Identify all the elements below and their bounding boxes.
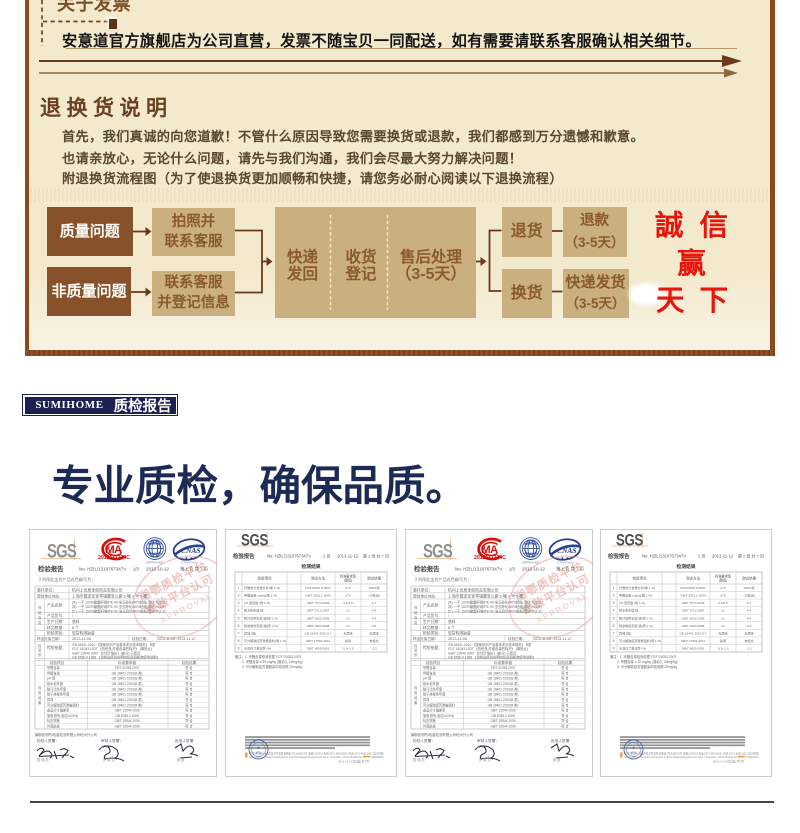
- svg-text:≤75: ≤75: [345, 594, 350, 598]
- svg-text:GB 18401-2010(B 类): GB 18401-2010(B 类): [488, 697, 519, 702]
- svg-text:≥3: ≥3: [346, 616, 350, 620]
- svg-text:检验依据：: 检验依据：: [47, 645, 66, 650]
- svg-text:信: 信: [414, 615, 418, 620]
- svg-text:符 合: 符 合: [185, 718, 193, 723]
- svg-text:样品交接日期：: 样品交接日期：: [37, 636, 62, 641]
- svg-text:耐干摩擦色牢度: 耐干摩擦色牢度: [47, 692, 70, 697]
- svg-text:GB 18401-2010(B 类): GB 18401-2010(B 类): [488, 692, 519, 697]
- svg-text:检验报告: 检验报告: [233, 552, 255, 560]
- svg-text:第 2 页 共 7 页: 第 2 页 共 7 页: [363, 553, 389, 559]
- svg-text:符 合: 符 合: [185, 702, 193, 707]
- svg-text:4-5: 4-5: [747, 624, 752, 628]
- svg-text:检: 检: [414, 643, 418, 648]
- svg-text:(C) 一干 100%聚酯纤维/PE-90 全无砂化/40%: (C) 一干 100%聚酯纤维/PE-90 全无砂化/40%粘贴,混纺,%(1/…: [72, 608, 166, 613]
- svg-text:无异味: 无异味: [343, 630, 352, 635]
- svg-text:≥3: ≥3: [721, 624, 725, 628]
- svg-text:No. HZIL/1310767347V: No. HZIL/1310767347V: [267, 554, 311, 559]
- svg-text:生产日期：: 生产日期：: [423, 619, 442, 624]
- svg-text:1: 1: [613, 586, 615, 590]
- svg-text:2013-11-12: 2013-11-12: [337, 554, 359, 559]
- svg-text:2. 甲醛含量 ≤ 20 mg/kg (婴幼儿 20mg/k: 2. 甲醛含量 ≤ 20 mg/kg (婴幼儿 20mg/kg): [242, 659, 303, 664]
- svg-text:符 合: 符 合: [561, 692, 569, 697]
- svg-text:无异味: 无异味: [369, 630, 378, 635]
- svg-text:FZ/T01057 8:2007: FZ/T01057 8:2007: [680, 586, 706, 590]
- svg-text:标志规格: 标志规格: [47, 718, 61, 723]
- svg-text:检验项目: 检验项目: [50, 660, 64, 665]
- svg-text:底料: 底料: [448, 619, 456, 624]
- svg-text:产品名称：: 产品名称：: [47, 603, 66, 608]
- svg-text:产品货号：: 产品货号：: [47, 613, 66, 618]
- svg-text:GB 18401-2010(B 类): GB 18401-2010(B 类): [488, 681, 519, 686]
- svg-text:2012111234C: 2012111234C: [98, 555, 130, 561]
- svg-text:杭州上佳居家纺织品有限公司: 杭州上佳居家纺织品有限公司: [448, 587, 499, 592]
- svg-text:GB 18401-2010(B 类): GB 18401-2010(B 类): [488, 670, 519, 675]
- svg-text:GB/T 2912.1-2009: GB/T 2912.1-2009: [305, 594, 331, 598]
- svg-text:信: 信: [38, 615, 42, 620]
- svg-text:样品数量：: 样品数量：: [423, 625, 442, 630]
- svg-text:(A) 一干 100%聚酯纤维/PE-90 全无砂化/40%: (A) 一干 100%聚酯纤维/PE-90 全无砂化/40%粘贴,混纺,%(1/…: [448, 600, 541, 605]
- svg-text:样: 样: [38, 605, 42, 610]
- svg-text:符 合: 符 合: [561, 676, 569, 681]
- svg-text:★: ★: [632, 745, 636, 750]
- svg-text:受检单位地址：: 受检单位地址：: [413, 593, 439, 598]
- svg-text:无异味: 无异味: [744, 630, 753, 635]
- svg-text:GB/T 3920-2008: GB/T 3920-2008: [307, 624, 330, 628]
- svg-text:FZ/T 01053-2007 《纺织品 纤维含量的标识》: FZ/T 01053-2007 《纺织品 纤维含量的标识》 (单检点): [448, 646, 528, 651]
- svg-text:检测结果: 检测结果: [301, 563, 320, 570]
- svg-text:结: 结: [38, 695, 42, 700]
- svg-text:耐汗渍色牢度: 耐汗渍色牢度: [47, 686, 67, 691]
- svg-text:外观质量: 外观质量: [47, 724, 61, 729]
- svg-text:备注：1. 甲醛含量检测依据 FZ/T 01053-2007: 备注：1. 甲醛含量检测依据 FZ/T 01053-2007: [610, 654, 676, 659]
- svg-text:2 页: 2 页: [323, 554, 330, 559]
- svg-text:1: 1: [238, 586, 240, 590]
- svg-text:No. HZIL/1310767347V: No. HZIL/1310767347V: [455, 567, 502, 572]
- svg-text:≥3: ≥3: [346, 624, 350, 628]
- svg-text:检验结果: 检验结果: [182, 660, 197, 665]
- svg-text:2013-11-06: 2013-11-06: [72, 637, 91, 641]
- svg-text:符 合: 符 合: [561, 702, 569, 707]
- svg-text:GB 18401-2010 《国家纺织产品基本安全技术规范》: GB 18401-2010 《国家纺织产品基本安全技术规范》 B类: [448, 642, 532, 647]
- svg-text:异味 (级): 异味 (级): [244, 630, 256, 635]
- svg-text:检验人签署：: 检验人签署：: [413, 738, 435, 743]
- svg-text:2013-11-12(第2版) 共7页: 2013-11-12(第2版) 共7页: [713, 760, 744, 764]
- svg-text:耐水色牢度: 耐水色牢度: [423, 681, 440, 686]
- svg-text:甲醛含量: 甲醛含量: [47, 665, 61, 670]
- svg-text:GB 18401-2010 8.7: GB 18401-2010 8.7: [679, 631, 706, 635]
- svg-text:使用说明 (标志±4.5%): 使用说明 (标志±4.5%): [47, 713, 78, 718]
- svg-text:第 1 页 共 7 页: 第 1 页 共 7 页: [180, 566, 209, 573]
- svg-text:编制检测所/检疫检测有限公司杭州分公司: 编制检测所/检疫检测有限公司杭州分公司: [411, 732, 473, 737]
- svg-text:GB 18401-2010(B 类): GB 18401-2010(B 类): [488, 676, 519, 681]
- svg-text:pH 值范围 (限 1 %): pH 值范围 (限 1 %): [619, 600, 645, 605]
- svg-text:GB 18401-2010(B 类): GB 18401-2010(B 类): [112, 692, 143, 697]
- svg-text:检测结果: 检测结果: [676, 563, 695, 570]
- svg-text:GB/T 3922-1995: GB/T 3922-1995: [682, 616, 705, 620]
- svg-text:果: 果: [414, 700, 418, 705]
- svg-text:无异味: 无异味: [718, 630, 727, 635]
- svg-text:检验报告: 检验报告: [608, 552, 630, 560]
- svg-text:品: 品: [38, 611, 42, 615]
- svg-text:GB/T 22544 2009: GB/T 22544 2009: [114, 725, 139, 729]
- svg-text:符 合: 符 合: [561, 708, 569, 713]
- svg-text:符 合: 符 合: [561, 665, 569, 670]
- svg-text:检验日期：: 检验日期：: [508, 636, 526, 641]
- svg-text:水洗尺寸变化率 (%): 水洗尺寸变化率 (%): [619, 646, 646, 651]
- svg-text:8 个: 8 个: [448, 625, 455, 630]
- svg-text:符 合: 符 合: [185, 681, 193, 686]
- svg-text:编制检测所/检疫检测有限公司杭州分公司: 编制检测所/检疫检测有限公司杭州分公司: [35, 732, 97, 737]
- svg-text:禁用: 禁用: [345, 639, 351, 643]
- svg-text:GB 5296.4-1998 《消费品使用说明纺织品和服装使: GB 5296.4-1998 《消费品使用说明纺织品和服装使用说明》: [448, 655, 536, 660]
- svg-text:未检出: 未检出: [744, 638, 753, 643]
- svg-text:8: 8: [238, 639, 240, 643]
- svg-text:5: 5: [238, 616, 240, 620]
- svg-text:外观质量: 外观质量: [423, 724, 437, 729]
- svg-text:(B) 一干 100%聚酯纤维/PE-90 全无砂化/40%: (B) 一干 100%聚酯纤维/PE-90 全无砂化/40%粘贴,混纺,%(1/…: [448, 604, 541, 609]
- svg-text:符 合: 符 合: [185, 686, 193, 691]
- svg-text:中国·浙江杭州经济技术开发区白杨街2号大街515号 邮编:3: 中国·浙江杭州经济技术开发区白杨街2号大街515号 邮编:310018 电话:0…: [249, 752, 384, 756]
- svg-text:GB 18401-2010(B 类): GB 18401-2010(B 类): [112, 681, 143, 686]
- svg-text:耐摩擦色牢度 级(限 1 %): 耐摩擦色牢度 级(限 1 %): [619, 623, 653, 628]
- svg-text:100%涤: 100%涤: [368, 585, 379, 590]
- svg-text:(A) 一干 100%聚酯纤维/PE-90 全无砂化/40%: (A) 一干 100%聚酯纤维/PE-90 全无砂化/40%粘贴,混纺,%(1/…: [72, 600, 165, 605]
- svg-text:测试结果: 测试结果: [367, 576, 382, 581]
- svg-text:-1.2: -1.2: [371, 647, 377, 651]
- svg-text:符 合: 符 合: [185, 676, 193, 681]
- svg-text:甲醛含量 mg/kg(限 1 %): 甲醛含量 mg/kg(限 1 %): [244, 593, 277, 598]
- svg-text:4-5: 4-5: [372, 609, 377, 613]
- svg-text:2013-11-12(第2版) 共7页: 2013-11-12(第2版) 共7页: [338, 760, 369, 764]
- svg-text:GB 18401-2010(B 类): GB 18401-2010(B 类): [112, 697, 143, 702]
- svg-text:成品尺寸偏差率: 成品尺寸偏差率: [423, 708, 446, 713]
- svg-text:9: 9: [613, 647, 615, 651]
- svg-text:检验项目: 检验项目: [632, 576, 646, 581]
- svg-text:GB 18401-2010(B 类): GB 18401-2010(B 类): [112, 686, 143, 691]
- svg-text:6: 6: [238, 624, 240, 628]
- svg-text:GB 5296.4 1998: GB 5296.4 1998: [115, 714, 138, 718]
- svg-text:pH 值: pH 值: [423, 676, 432, 681]
- svg-text:验: 验: [414, 648, 418, 653]
- svg-text:4: 4: [613, 609, 615, 613]
- svg-text:检 验 员: 检 验 员: [37, 757, 49, 762]
- svg-text:现货检测抽查: 现货检测抽查: [448, 630, 471, 635]
- svg-text:(C) 一干 100%聚酯纤维/PE-90 全无砂化/40%: (C) 一干 100%聚酯纤维/PE-90 全无砂化/40%粘贴,混纺,%(1/…: [448, 608, 542, 613]
- svg-text:果: 果: [38, 700, 42, 705]
- svg-text:可分解致癌芳香胺染料(限 1 %): 可分解致癌芳香胺染料(限 1 %): [244, 638, 286, 643]
- svg-text:底料: 底料: [72, 619, 80, 624]
- svg-text:检验依据：: 检验依据：: [423, 645, 442, 650]
- svg-text:GB 18401-2010(B 类): GB 18401-2010(B 类): [112, 670, 143, 675]
- svg-text:No. HZIL/1310767347V: No. HZIL/1310767347V: [642, 554, 686, 559]
- svg-text:GB/T 3920-2008: GB/T 3920-2008: [682, 624, 705, 628]
- svg-text:第 1 页 共 7 页: 第 1 页 共 7 页: [556, 566, 585, 573]
- svg-text:中国·浙江杭州经济技术开发区白杨街2号大街515号 邮编:3: 中国·浙江杭州经济技术开发区白杨街2号大街515号 邮编:310018 电话:0…: [624, 752, 759, 756]
- svg-text:GB/T 22544 2009: GB/T 22544 2009: [490, 709, 515, 713]
- svg-text:GB/T 22544 2009: GB/T 22544 2009: [490, 725, 515, 729]
- svg-text:甲醛含量: 甲醛含量: [423, 665, 437, 670]
- svg-text:-0.7°: -0.7°: [720, 586, 727, 590]
- svg-text:≤75: ≤75: [720, 594, 725, 598]
- svg-text:(限值): (限值): [344, 578, 353, 583]
- svg-text:GB/T 17592-2011: GB/T 17592-2011: [681, 639, 706, 643]
- svg-text:生产日期：: 生产日期：: [47, 619, 66, 624]
- svg-text:验: 验: [414, 690, 418, 695]
- svg-text:禁用: 禁用: [720, 639, 726, 643]
- svg-text:标准要求值: 标准要求值: [118, 660, 136, 665]
- svg-text:3. 可分解致癌芳香胺染料检测限 20mg/kg: 3. 可分解致癌芳香胺染料检测限 20mg/kg: [617, 664, 677, 669]
- svg-text:纤维成分含量分析(重 1 %): 纤维成分含量分析(重 1 %): [619, 585, 655, 590]
- svg-text:水洗尺寸变化率 (%): 水洗尺寸变化率 (%): [244, 646, 271, 651]
- svg-text:耐汗渍色牢度 级(限 1 %): 耐汗渍色牢度 级(限 1 %): [619, 615, 653, 620]
- svg-text:检验报告: 检验报告: [38, 564, 64, 573]
- svg-text:1/3: 1/3: [133, 567, 140, 572]
- svg-text:批 准: 批 准: [553, 757, 561, 762]
- svg-text:★: ★: [257, 745, 261, 750]
- svg-text:SGS: SGS: [47, 539, 76, 562]
- svg-text:审核人签署：: 审核人签署：: [477, 738, 499, 743]
- svg-text:标准要求值: 标准要求值: [494, 660, 512, 665]
- svg-text:耐水色牢度 级: 耐水色牢度 级: [244, 608, 263, 613]
- svg-text:6.7: 6.7: [747, 601, 752, 605]
- svg-text:批准人签署：: 批准人签署：: [175, 738, 197, 743]
- svg-text:受检单位地址：: 受检单位地址：: [37, 593, 63, 598]
- svg-text:耐水色牢度: 耐水色牢度: [47, 681, 64, 686]
- svg-text:GB 5296.4 1998: GB 5296.4 1998: [491, 714, 514, 718]
- svg-text:7: 7: [238, 631, 240, 635]
- svg-text:检验项目: 检验项目: [257, 576, 271, 581]
- svg-text:样: 样: [414, 605, 418, 610]
- svg-text:<5(检出): <5(检出): [368, 593, 380, 598]
- svg-text:耐摩擦色牢度 级(限 1 %): 耐摩擦色牢度 级(限 1 %): [244, 623, 278, 628]
- svg-text:上海市嘉定区安亭镇曹安公路 5 幢 2 号 5 楼: 上海市嘉定区安亭镇曹安公路 5 幢 2 号 5 楼: [448, 593, 523, 598]
- svg-text:可分解致癌芳香胺染料: 可分解致癌芳香胺染料: [47, 702, 80, 707]
- svg-text:-5.0~1.5: -5.0~1.5: [342, 647, 354, 651]
- svg-text:检: 检: [38, 643, 42, 648]
- svg-text:-5.0~1.5: -5.0~1.5: [717, 647, 729, 651]
- svg-text:标志规格: 标志规格: [423, 718, 437, 723]
- svg-text:甲醛含量: 甲醛含量: [47, 670, 61, 675]
- svg-text:2. 甲醛含量 ≤ 20 mg/kg (婴幼儿 20mg/k: 2. 甲醛含量 ≤ 20 mg/kg (婴幼儿 20mg/kg): [617, 659, 678, 664]
- svg-text:4-5: 4-5: [372, 616, 377, 620]
- svg-text:-1.2: -1.2: [746, 647, 752, 651]
- svg-text:检验结果: 检验结果: [558, 660, 573, 665]
- svg-text:FZ/T 01053-2007: FZ/T 01053-2007: [491, 666, 516, 670]
- svg-text:测试方法: 测试方法: [686, 576, 701, 581]
- svg-text:FZ/T 01053-2007: FZ/T 01053-2007: [115, 666, 140, 670]
- svg-text:耐干摩擦色牢度: 耐干摩擦色牢度: [423, 692, 446, 697]
- svg-text:SGS: SGS: [616, 531, 643, 550]
- svg-text:4.0-8.5: 4.0-8.5: [343, 601, 353, 605]
- svg-text:符 合: 符 合: [185, 713, 193, 718]
- svg-text:2013-11-06~2013-11-12: 2013-11-06~2013-11-12: [533, 637, 571, 641]
- svg-text:2012111234C: 2012111234C: [474, 555, 506, 561]
- svg-text:可分解致癌芳香胺染料(限 1 %): 可分解致癌芳香胺染料(限 1 %): [619, 638, 661, 643]
- svg-text:异味: 异味: [423, 697, 430, 702]
- svg-text:异味 (级): 异味 (级): [619, 630, 631, 635]
- svg-text:FZ/T 01053-2007 《纺织品 纤维含量的标识》: FZ/T 01053-2007 《纺织品 纤维含量的标识》 (单检点): [72, 646, 152, 651]
- svg-text:8 个: 8 个: [72, 625, 79, 630]
- svg-text:审核人签署：: 审核人签署：: [101, 738, 123, 743]
- svg-text:GB/T 22544 2009 《针织T恤衫》(部分) 只: GB/T 22544 2009 《针织T恤衫》(部分) 只检点: [448, 650, 517, 655]
- svg-text:GB/T 17592-2011: GB/T 17592-2011: [306, 639, 331, 643]
- svg-text:4-5: 4-5: [372, 624, 377, 628]
- svg-text:检验日期：: 检验日期：: [132, 636, 150, 641]
- svg-text:符 合: 符 合: [185, 724, 193, 729]
- svg-text:4: 4: [238, 609, 240, 613]
- svg-text:2013-10-12: 2013-10-12: [522, 567, 546, 572]
- svg-text:GB 18401-2010(B 类): GB 18401-2010(B 类): [112, 676, 143, 681]
- svg-text:9: 9: [238, 647, 240, 651]
- svg-text:甲醛含量: 甲醛含量: [423, 670, 437, 675]
- svg-text:8: 8: [613, 639, 615, 643]
- svg-text:GB/T 3922-1995: GB/T 3922-1995: [307, 616, 330, 620]
- svg-text:(B) 一干 100%聚酯纤维/PE-90 全无砂化/40%: (B) 一干 100%聚酯纤维/PE-90 全无砂化/40%粘贴,混纺,%(1/…: [72, 604, 165, 609]
- svg-text:检: 检: [38, 685, 42, 690]
- svg-text:7: 7: [613, 631, 615, 635]
- svg-text:HZIL: HZIL: [256, 751, 262, 755]
- svg-text:记 录 员: 记 录 员: [479, 757, 491, 762]
- svg-text:GB 18401-2010(B 类): GB 18401-2010(B 类): [112, 702, 143, 707]
- svg-text:检验人签署：: 检验人签署：: [37, 738, 59, 743]
- svg-text:品: 品: [414, 611, 418, 615]
- svg-text:GB 18401-2010 8.7: GB 18401-2010 8.7: [304, 631, 331, 635]
- svg-text:5: 5: [613, 616, 615, 620]
- svg-text:SGS: SGS: [241, 531, 268, 550]
- svg-text:甲醛含量 mg/kg(限 1 %): 甲醛含量 mg/kg(限 1 %): [619, 593, 652, 598]
- svg-text:2013-11-06~2013-11-12: 2013-11-06~2013-11-12: [157, 637, 195, 641]
- svg-text:MA: MA: [106, 544, 123, 556]
- svg-text:3: 3: [238, 601, 240, 605]
- svg-text:2 页: 2 页: [698, 554, 705, 559]
- svg-text:2: 2: [238, 594, 240, 598]
- svg-text:GB 5296.4-1998 《消费品使用说明纺织品和服装使: GB 5296.4-1998 《消费品使用说明纺织品和服装使用说明》: [72, 655, 160, 660]
- svg-text:批 准: 批 准: [177, 757, 185, 762]
- svg-text:检验类别：: 检验类别：: [423, 630, 442, 635]
- svg-text:验: 验: [38, 648, 42, 653]
- svg-text:2013-10-12: 2013-10-12: [146, 567, 170, 572]
- svg-text:样品数量：: 样品数量：: [47, 625, 66, 630]
- svg-text:结: 结: [414, 695, 418, 700]
- svg-text:符 合: 符 合: [561, 670, 569, 675]
- svg-text:CNAS: CNAS: [181, 546, 201, 555]
- svg-text:6.7: 6.7: [372, 601, 377, 605]
- svg-text:GB 18401-2010(B 类): GB 18401-2010(B 类): [488, 702, 519, 707]
- svg-text:依: 依: [38, 652, 42, 657]
- svg-text:耐汗渍色牢度: 耐汗渍色牢度: [423, 686, 443, 691]
- svg-text:检验项目: 检验项目: [426, 660, 440, 665]
- svg-text:<5(检出): <5(检出): [743, 593, 755, 598]
- svg-text:6: 6: [613, 624, 615, 628]
- svg-text:GB/T 22544 2009 《针织T恤衫》(部分) 只: GB/T 22544 2009 《针织T恤衫》(部分) 只检点: [72, 650, 141, 655]
- svg-text:符 合: 符 合: [561, 724, 569, 729]
- svg-text:于列停此出货产品花色编号为：: 于列停此出货产品花色编号为：: [414, 576, 471, 582]
- svg-text:符 合: 符 合: [185, 692, 193, 697]
- svg-text:测试方法: 测试方法: [311, 576, 326, 581]
- svg-text:GB/T 22544 2009: GB/T 22544 2009: [114, 709, 139, 713]
- svg-text:成品尺寸偏差率: 成品尺寸偏差率: [47, 708, 70, 713]
- svg-text:可分解致癌芳香胺染料: 可分解致癌芳香胺染料: [423, 702, 456, 707]
- svg-text:于列停此出货产品花色编号为：: 于列停此出货产品花色编号为：: [38, 576, 95, 582]
- svg-text:GB 18401-2010 《国家纺织产品基本安全技术规范》: GB 18401-2010 《国家纺织产品基本安全技术规范》 B类: [72, 642, 156, 647]
- svg-text:第 2 页 共 7 页: 第 2 页 共 7 页: [738, 553, 764, 559]
- svg-text:1/3: 1/3: [509, 567, 516, 572]
- svg-text:息: 息: [414, 620, 418, 625]
- svg-text:3. 可分解致癌芳香胺染料检测限 20mg/kg: 3. 可分解致癌芳香胺染料检测限 20mg/kg: [242, 664, 302, 669]
- svg-text:3: 3: [613, 601, 615, 605]
- svg-text:备注：1. 甲醛含量检测依据 FZ/T 01053-2007: 备注：1. 甲醛含量检测依据 FZ/T 01053-2007: [235, 654, 301, 659]
- svg-text:(限值): (限值): [719, 578, 728, 583]
- svg-text:记 录 员: 记 录 员: [103, 757, 115, 762]
- svg-text:上海市嘉定区安亭镇曹安公路 5 幢 2 号 5 楼: 上海市嘉定区安亭镇曹安公路 5 幢 2 号 5 楼: [72, 593, 147, 598]
- svg-text:检 验 员: 检 验 员: [413, 757, 425, 762]
- svg-text:使用说明 (标志±4.5%): 使用说明 (标志±4.5%): [423, 713, 454, 718]
- svg-text:2013-11-06: 2013-11-06: [448, 637, 467, 641]
- svg-text:符 合: 符 合: [561, 697, 569, 702]
- svg-text:FZ/T01057 8:2007: FZ/T01057 8:2007: [305, 586, 331, 590]
- svg-text:GB/T 8629-2001: GB/T 8629-2001: [307, 647, 330, 651]
- svg-text:符 合: 符 合: [561, 713, 569, 718]
- svg-text:符 合: 符 合: [185, 697, 193, 702]
- svg-text:GB/T 5713-1997: GB/T 5713-1997: [682, 609, 705, 613]
- svg-text:100%涤: 100%涤: [743, 585, 754, 590]
- svg-text:GB 18401-2010(B 类): GB 18401-2010(B 类): [488, 686, 519, 691]
- svg-text:2013-11-12: 2013-11-12: [712, 554, 734, 559]
- svg-text:GB/T 22544 2009: GB/T 22544 2009: [114, 719, 139, 723]
- svg-text:GB/T 2912.1-2009: GB/T 2912.1-2009: [680, 594, 706, 598]
- svg-text:2: 2: [613, 594, 615, 598]
- svg-text:No. HZIL/1310767347V: No. HZIL/1310767347V: [79, 567, 126, 572]
- svg-text:4.0-8.5: 4.0-8.5: [718, 601, 728, 605]
- svg-text:符 合: 符 合: [561, 718, 569, 723]
- svg-text:符 合: 符 合: [561, 686, 569, 691]
- svg-text:耐汗渍色牢度 级(限 1 %): 耐汗渍色牢度 级(限 1 %): [244, 615, 278, 620]
- svg-text:符 合: 符 合: [185, 708, 193, 713]
- svg-text:-0.7°: -0.7°: [345, 586, 352, 590]
- svg-text:4-5: 4-5: [747, 616, 752, 620]
- svg-text:产品名称：: 产品名称：: [423, 603, 442, 608]
- svg-text:杭州上佳居家纺织品有限公司: 杭州上佳居家纺织品有限公司: [72, 587, 123, 592]
- svg-text:符 合: 符 合: [185, 670, 193, 675]
- svg-text:批准人签署：: 批准人签署：: [551, 738, 573, 743]
- svg-text:GB/T 7573-2009: GB/T 7573-2009: [682, 601, 705, 605]
- svg-text:符 合: 符 合: [185, 665, 193, 670]
- svg-text:委托单位：: 委托单位：: [413, 587, 432, 592]
- svg-text:SGS: SGS: [423, 539, 452, 562]
- svg-text:CNAS: CNAS: [557, 546, 577, 555]
- svg-text:产品货号：: 产品货号：: [423, 613, 442, 618]
- svg-text:现货检测抽查: 现货检测抽查: [72, 630, 95, 635]
- svg-text:pH 值: pH 值: [47, 676, 56, 681]
- svg-text:依: 依: [414, 652, 418, 657]
- svg-text:检验报告: 检验报告: [414, 564, 440, 573]
- svg-text:息: 息: [38, 620, 42, 625]
- svg-text:HZIL: HZIL: [631, 751, 637, 755]
- svg-text:符 合: 符 合: [561, 681, 569, 686]
- svg-text:≥3: ≥3: [346, 609, 350, 613]
- svg-text:≥3: ≥3: [721, 616, 725, 620]
- svg-text:委托单位：: 委托单位：: [37, 587, 56, 592]
- svg-text:GB/T 7573-2009: GB/T 7573-2009: [307, 601, 330, 605]
- svg-text:样品交接日期：: 样品交接日期：: [413, 636, 438, 641]
- svg-text:异味: 异味: [47, 697, 54, 702]
- svg-text:GB/T 5713-1997: GB/T 5713-1997: [307, 609, 330, 613]
- svg-text:验: 验: [38, 690, 42, 695]
- svg-text:4-5: 4-5: [747, 609, 752, 613]
- svg-text:测试结果: 测试结果: [742, 576, 757, 581]
- svg-text:纤维成分含量分析(重 1 %): 纤维成分含量分析(重 1 %): [244, 585, 280, 590]
- svg-text:≥3: ≥3: [721, 609, 725, 613]
